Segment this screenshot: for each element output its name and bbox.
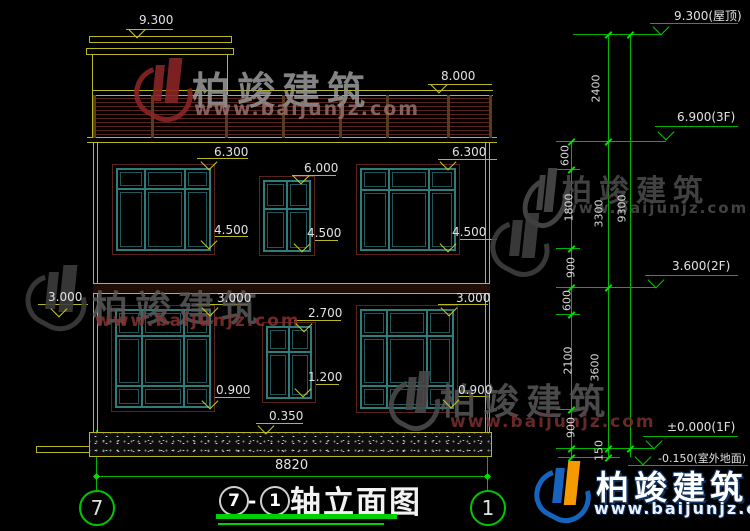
- window-pane: [116, 386, 142, 407]
- window-pane-inner-frame: [364, 172, 386, 187]
- elev-label: 0.350: [269, 409, 303, 423]
- window-pane: [116, 336, 142, 385]
- title-axis-circle-1: 1: [260, 486, 290, 516]
- window-pane-inner-frame: [364, 339, 384, 383]
- elevation-drawing-canvas: 柏竣建筑 www.baijunjz.com 柏竣建筑 www.baijunjz.…: [0, 0, 750, 531]
- elev-label: 6.300: [214, 145, 248, 159]
- window-pane-inner-frame: [145, 339, 180, 382]
- window-pane-inner-frame: [120, 172, 142, 186]
- brand-logo-color: [538, 461, 590, 517]
- window-pane-inner-frame: [270, 330, 286, 349]
- elev-label: 0.900: [458, 383, 492, 397]
- window-frame: [360, 168, 456, 251]
- ground-step: [36, 446, 91, 453]
- dim-value: 600: [561, 279, 574, 323]
- dim-tick-icon: [93, 473, 100, 480]
- axis-bubble-7: 7: [79, 490, 115, 526]
- elev-label: 3.000: [217, 291, 251, 305]
- window-pane-inner-frame: [430, 313, 450, 333]
- elev-label: 6.300: [452, 145, 486, 159]
- dim-tick-icon: [484, 473, 491, 480]
- window-pane: [142, 386, 183, 407]
- watermark-url: www.baijunjz.com: [563, 199, 748, 217]
- elev-label: 3.000: [48, 290, 82, 304]
- railing-post: [93, 95, 96, 138]
- elev-label: 0.900: [216, 383, 250, 397]
- level-label: 3.600(2F): [672, 259, 730, 273]
- dim-value: 3300: [593, 192, 606, 236]
- window-pane-inner-frame: [290, 184, 307, 206]
- window-pane-inner-frame: [270, 355, 286, 395]
- watermark-url: www.baijunjz.com: [95, 311, 301, 331]
- window-pane: [145, 189, 185, 250]
- window-pane-inner-frame: [392, 172, 425, 187]
- window-pane: [184, 336, 210, 385]
- window-pane-inner-frame: [119, 389, 139, 404]
- dim-value: 3600: [589, 346, 602, 390]
- elev-label: 6.000: [304, 161, 338, 175]
- elev-label: 1.200: [308, 370, 342, 384]
- roof-slab-line: [87, 142, 497, 143]
- window-pane-inner-frame: [292, 330, 308, 349]
- window-pane: [389, 169, 428, 190]
- window-pane-inner-frame: [145, 389, 180, 404]
- window-pane: [387, 310, 427, 336]
- window-pane-inner-frame: [364, 313, 384, 333]
- title-dash: -: [248, 489, 256, 513]
- window-pane: [267, 352, 289, 398]
- window-pane: [142, 336, 183, 385]
- title-underline: [216, 514, 397, 519]
- window-pane: [117, 169, 145, 189]
- watermark-url: www.baijunjz.com: [450, 412, 656, 432]
- window-pane: [117, 189, 145, 250]
- window-pane: [185, 169, 210, 189]
- window-pane: [361, 386, 387, 408]
- dim-value: 2100: [562, 339, 575, 383]
- bottom-dim-value: 8820: [275, 458, 308, 473]
- railing-post: [447, 95, 450, 138]
- dim-value: 1800: [563, 186, 576, 230]
- level-label: 9.300(屋顶): [674, 7, 742, 24]
- window-pane: [145, 169, 185, 189]
- watermark-url: www.baijunjz.com: [194, 98, 420, 120]
- window-pane-inner-frame: [364, 389, 384, 405]
- watermark-logo: [494, 213, 550, 271]
- window-2f-left: [112, 164, 215, 255]
- railing-post: [489, 95, 492, 138]
- window-pane-inner-frame: [432, 172, 452, 187]
- elev-label: 4.500: [452, 225, 486, 239]
- dim-value: 9300: [616, 187, 629, 231]
- window-pane-inner-frame: [267, 184, 284, 206]
- elev-label: 4.500: [214, 223, 248, 237]
- window-pane: [264, 209, 287, 251]
- roof-slab-line: [87, 137, 497, 138]
- level-triangle-icon: [653, 19, 670, 36]
- window-pane-inner-frame: [120, 192, 142, 247]
- window-pane-inner-frame: [187, 339, 207, 382]
- window-pane: [287, 181, 310, 209]
- window-pane-inner-frame: [364, 193, 386, 247]
- window-pane: [389, 190, 428, 250]
- watermark-logo: [138, 58, 192, 116]
- watermark-logo: [393, 371, 439, 425]
- elev-label: 2.700: [308, 306, 342, 320]
- level-label: ±0.000(1F): [667, 420, 735, 434]
- plinth: [89, 432, 492, 457]
- title-underline-thin: [218, 523, 384, 525]
- axis-bubble-1: 1: [470, 490, 506, 526]
- window-pane: [361, 310, 387, 336]
- window-pane: [361, 169, 389, 190]
- level-extension-line: [573, 34, 661, 35]
- window-pane-inner-frame: [392, 193, 425, 247]
- title-axis-circle-7: 7: [219, 486, 249, 516]
- window-pane-inner-frame: [148, 172, 182, 186]
- elev-label: 8.000: [441, 69, 475, 83]
- window-pane-inner-frame: [390, 313, 424, 333]
- window-pane: [264, 181, 287, 209]
- dim-value: 600: [559, 134, 572, 178]
- window-frame: [116, 168, 211, 251]
- level-label: 6.900(3F): [677, 110, 735, 124]
- dim-value: 900: [565, 406, 578, 450]
- window-pane-inner-frame: [148, 192, 182, 247]
- window-pane: [361, 336, 387, 386]
- elev-label: 9.300: [139, 13, 173, 27]
- dim-value: 2400: [590, 67, 603, 111]
- dim-chain-line-total: [630, 34, 631, 457]
- window-pane-inner-frame: [267, 212, 284, 248]
- window-pane-inner-frame: [119, 339, 139, 382]
- brand-url: www.baijunjz.com: [594, 499, 750, 518]
- elev-label: 3.000: [456, 291, 490, 305]
- elev-label: 4.500: [307, 226, 341, 240]
- bulkhead-coping-lower: [86, 48, 234, 55]
- bulkhead-coping-upper: [89, 36, 232, 43]
- window-pane: [361, 190, 389, 250]
- window-pane: [429, 169, 455, 190]
- window-pane-inner-frame: [188, 172, 207, 186]
